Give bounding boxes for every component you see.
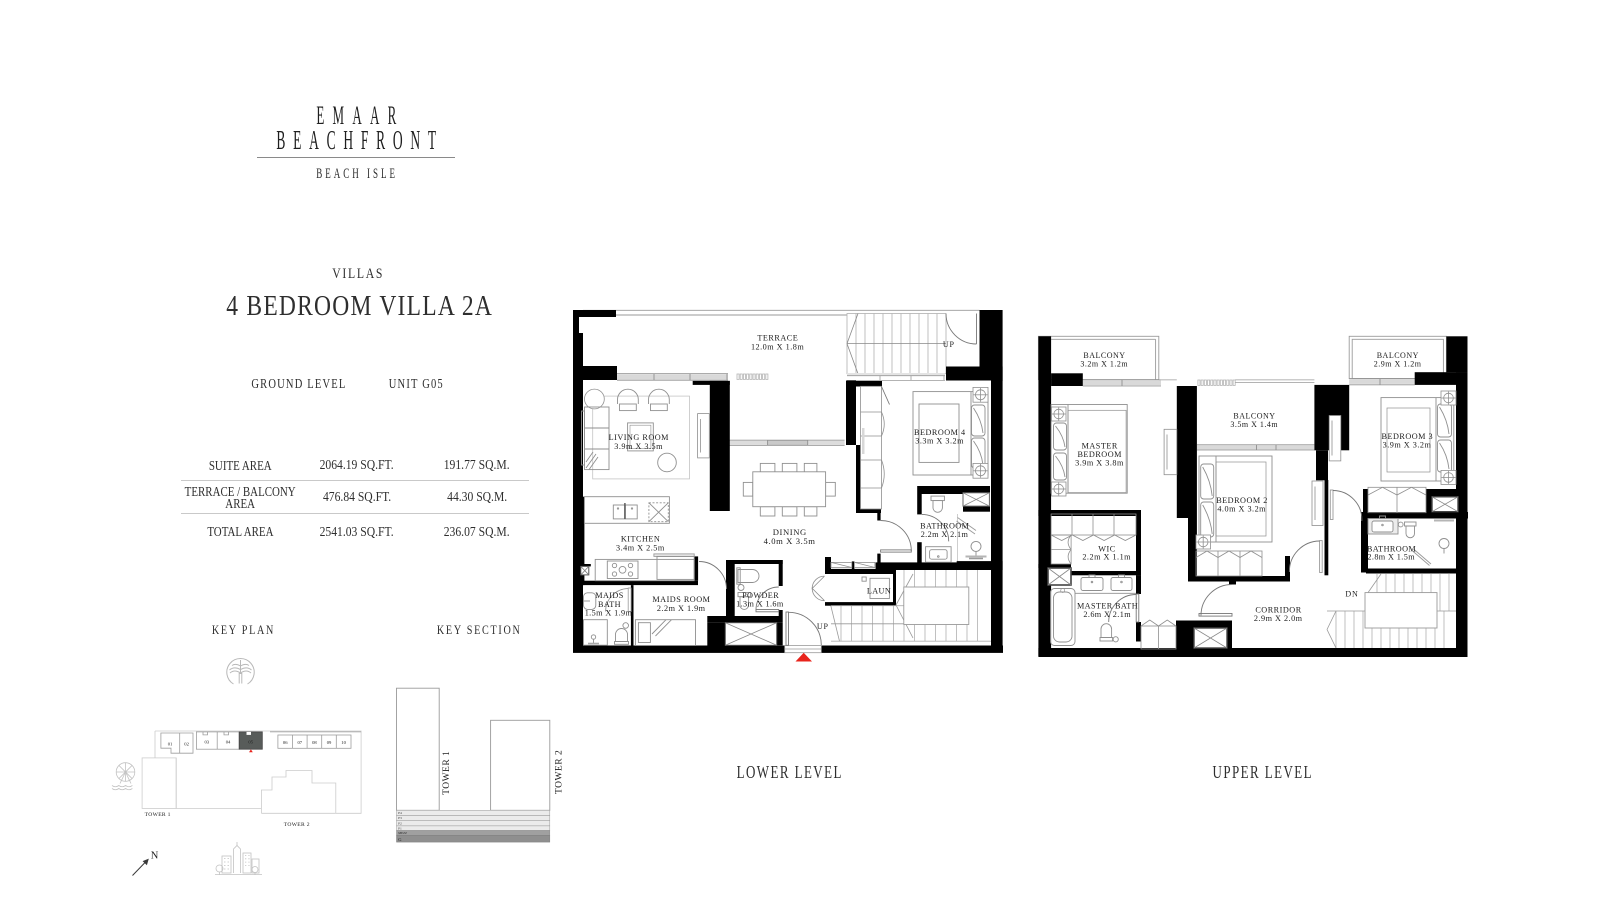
svg-text:04: 04 (226, 740, 231, 745)
svg-text:2.2m X 1.9m: 2.2m X 1.9m (657, 604, 706, 613)
svg-text:08: 08 (312, 740, 317, 745)
svg-text:4.0m X 3.2m: 4.0m X 3.2m (1217, 504, 1266, 513)
svg-text:DN: DN (1345, 590, 1358, 599)
svg-text:3.5m X 1.4m: 3.5m X 1.4m (1230, 420, 1278, 429)
svg-text:09: 09 (327, 740, 332, 745)
svg-text:TOWER 1: TOWER 1 (145, 812, 171, 818)
svg-text:2.2m X 1.1m: 2.2m X 1.1m (1082, 553, 1131, 562)
svg-text:3.9m X 3.8m: 3.9m X 3.8m (1075, 458, 1124, 467)
svg-text:1.5m X 1.9m: 1.5m X 1.9m (585, 609, 633, 618)
svg-text:3.4m X 2.5m: 3.4m X 2.5m (616, 543, 665, 552)
svg-text:2.9m X 1.2m: 2.9m X 1.2m (1374, 360, 1422, 369)
svg-text:KITCHEN: KITCHEN (621, 535, 660, 544)
svg-text:02: 02 (184, 742, 189, 747)
svg-text:MEZZ: MEZZ (398, 831, 407, 835)
svg-text:2.8m X 1.5m: 2.8m X 1.5m (1367, 553, 1415, 562)
svg-text:03: 03 (205, 740, 210, 745)
svg-text:3.9m X 3.2m: 3.9m X 3.2m (1383, 441, 1432, 450)
svg-text:P2: P2 (398, 821, 402, 825)
svg-text:3.9m X 3.5m: 3.9m X 3.5m (614, 442, 663, 451)
svg-text:2.2m X 2.1m: 2.2m X 2.1m (921, 530, 969, 539)
svg-text:TOWER 1: TOWER 1 (442, 751, 452, 795)
svg-text:P1: P1 (398, 826, 402, 830)
svg-text:3.2m X 1.2m: 3.2m X 1.2m (1080, 360, 1128, 369)
svg-text:06: 06 (283, 740, 288, 745)
svg-text:N: N (151, 851, 159, 862)
svg-text:10: 10 (341, 740, 346, 745)
svg-text:P4: P4 (398, 811, 402, 815)
svg-text:UP: UP (943, 340, 955, 349)
svg-text:07: 07 (298, 740, 303, 745)
svg-text:3.3m X 3.2m: 3.3m X 3.2m (915, 437, 964, 446)
svg-text:4.0m X 3.5m: 4.0m X 3.5m (764, 536, 816, 546)
svg-text:05: 05 (248, 740, 253, 745)
svg-text:MAIDS: MAIDS (595, 591, 623, 600)
svg-text:UP: UP (817, 622, 829, 631)
svg-text:MAIDS ROOM: MAIDS ROOM (652, 595, 710, 604)
svg-text:12.0m X 1.8m: 12.0m X 1.8m (751, 342, 804, 351)
svg-text:2.9m X 2.0m: 2.9m X 2.0m (1254, 614, 1303, 623)
svg-text:LAUN: LAUN (867, 586, 891, 595)
svg-text:01: 01 (168, 742, 173, 747)
svg-text:P3: P3 (398, 816, 402, 820)
svg-text:LIVING ROOM: LIVING ROOM (609, 433, 670, 442)
svg-text:TERRACE: TERRACE (757, 334, 798, 343)
svg-text:BEDROOM 4: BEDROOM 4 (914, 428, 966, 437)
svg-text:TOWER 2: TOWER 2 (284, 822, 310, 828)
svg-text:2.6m X 2.1m: 2.6m X 2.1m (1083, 610, 1131, 619)
svg-text:1.3m X 1.6m: 1.3m X 1.6m (736, 599, 784, 608)
svg-text:TOWER 2: TOWER 2 (555, 750, 565, 794)
